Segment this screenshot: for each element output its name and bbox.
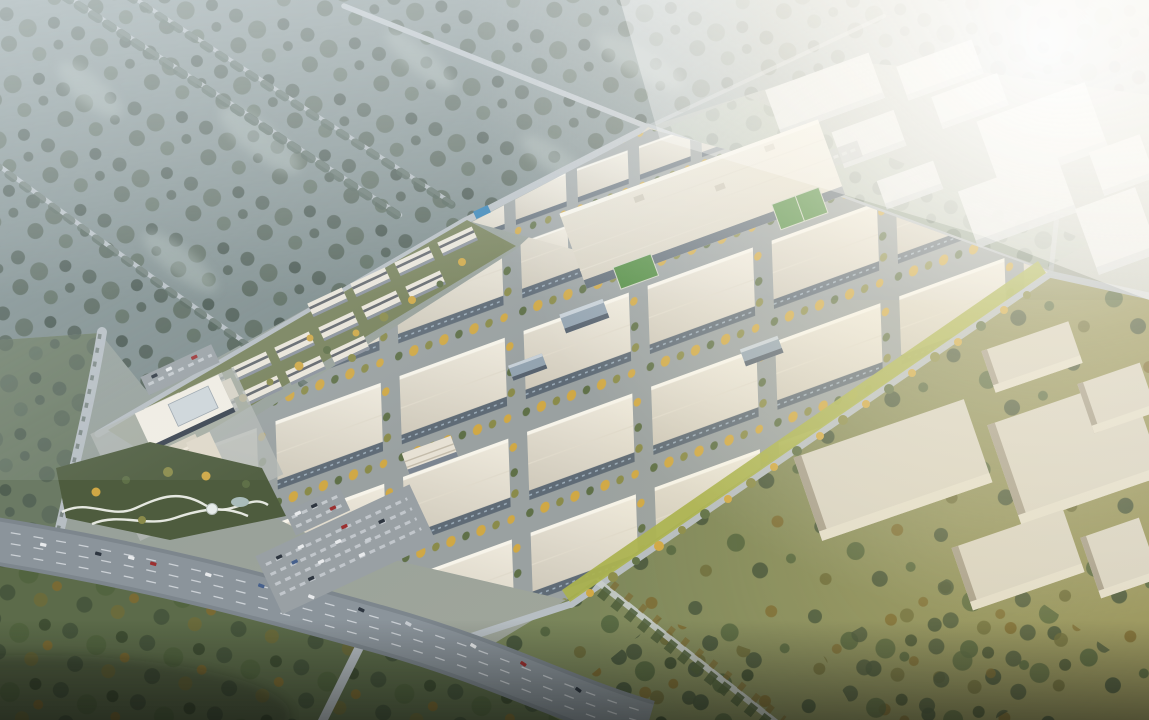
rendered-scene xyxy=(0,0,1149,720)
aerial-rendering-canvas xyxy=(0,0,1149,720)
atmosphere xyxy=(0,0,1149,720)
sun-glare xyxy=(0,0,1149,720)
